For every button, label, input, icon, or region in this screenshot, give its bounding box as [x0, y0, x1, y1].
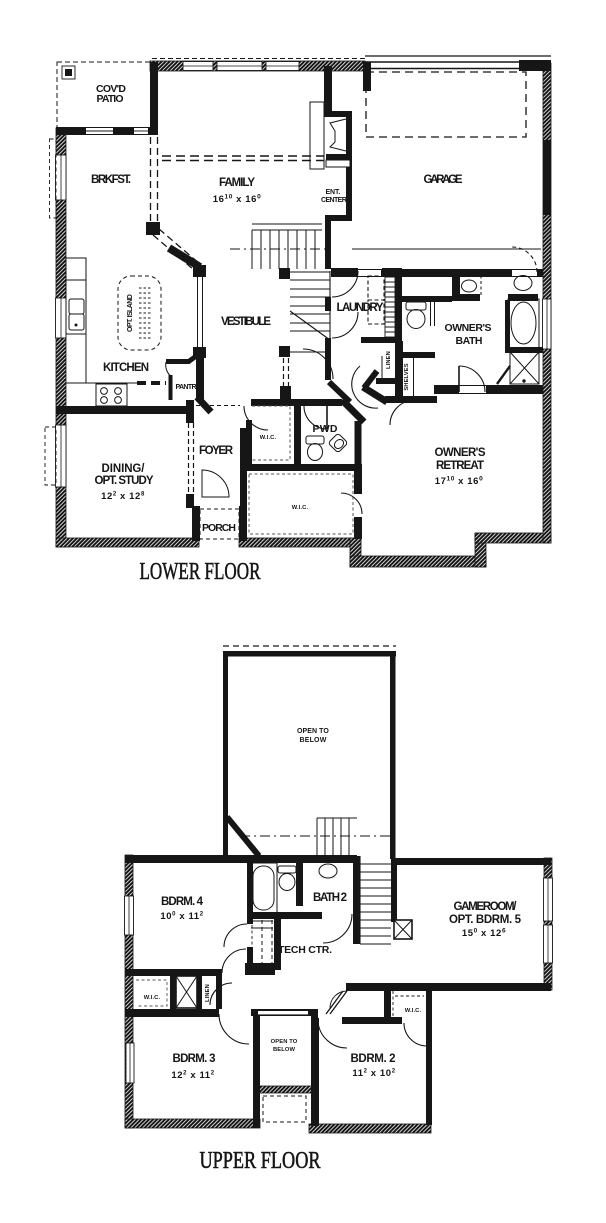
- svg-text:W.I.C.: W.I.C.: [260, 435, 277, 441]
- svg-text:BRKFST.: BRKFST.: [91, 174, 131, 186]
- svg-text:FOYER: FOYER: [199, 445, 234, 457]
- svg-text:OWNER'S: OWNER'S: [445, 322, 492, 334]
- svg-text:BATH: BATH: [456, 335, 483, 347]
- svg-text:OWNER'S: OWNER'S: [435, 447, 486, 459]
- svg-text:KITCHEN: KITCHEN: [103, 362, 149, 374]
- svg-text:112 x 102: 112 x 102: [352, 1068, 395, 1079]
- svg-text:1610 x 160: 1610 x 160: [213, 194, 262, 206]
- svg-text:BDRM. 4: BDRM. 4: [161, 896, 204, 908]
- svg-text:OPT. STUDY: OPT. STUDY: [95, 475, 154, 487]
- svg-text:OPEN TO: OPEN TO: [271, 1039, 298, 1045]
- svg-text:OPT. BDRM. 5: OPT. BDRM. 5: [449, 914, 522, 926]
- svg-text:W.I.C.: W.I.C.: [144, 995, 161, 1001]
- svg-text:W.I.C.: W.I.C.: [405, 1008, 422, 1014]
- svg-text:OPT. ISLAND: OPT. ISLAND: [127, 294, 134, 332]
- svg-text:122 x 128: 122 x 128: [101, 491, 145, 502]
- svg-text:VESTIBULE: VESTIBULE: [221, 316, 271, 328]
- svg-text:DINING/: DINING/: [102, 463, 146, 475]
- svg-text:SHELVES: SHELVES: [404, 363, 410, 390]
- svg-text:BDRM. 3: BDRM. 3: [173, 1053, 216, 1065]
- svg-text:150 x 126: 150 x 126: [462, 928, 506, 940]
- svg-text:PANTRY: PANTRY: [176, 384, 201, 391]
- svg-text:TECH CTR.: TECH CTR.: [278, 944, 332, 956]
- svg-text:FAMILY: FAMILY: [219, 177, 255, 189]
- svg-text:BELOW: BELOW: [273, 1047, 296, 1053]
- svg-text:LINEN: LINEN: [205, 984, 211, 1002]
- svg-text:PORCH: PORCH: [202, 522, 236, 534]
- svg-text:CENTER: CENTER: [321, 197, 347, 204]
- svg-text:ENT.: ENT.: [326, 189, 341, 196]
- svg-text:W.I.C.: W.I.C.: [292, 505, 309, 511]
- svg-text:1710 x 160: 1710 x 160: [435, 476, 484, 488]
- svg-text:OPEN TO: OPEN TO: [297, 728, 329, 735]
- svg-text:LINEN: LINEN: [386, 351, 392, 369]
- svg-text:BDRM. 2: BDRM. 2: [351, 1053, 396, 1065]
- svg-text:GARAGE: GARAGE: [424, 174, 463, 186]
- svg-text:GAMEROOM/: GAMEROOM/: [454, 901, 518, 913]
- svg-text:BELOW: BELOW: [300, 737, 327, 744]
- svg-text:UPPER FLOOR: UPPER FLOOR: [200, 1148, 321, 1174]
- svg-text:BATH 2: BATH 2: [313, 892, 347, 904]
- svg-text:PWD: PWD: [313, 423, 338, 435]
- svg-text:122 x 112: 122 x 112: [171, 1070, 214, 1081]
- svg-text:LAUNDRY: LAUNDRY: [337, 302, 384, 314]
- svg-text:PATIO: PATIO: [97, 93, 124, 105]
- svg-text:LOWER FLOOR: LOWER FLOOR: [140, 559, 261, 585]
- svg-text:RETREAT: RETREAT: [436, 460, 484, 472]
- svg-text:100 x 112: 100 x 112: [160, 911, 203, 922]
